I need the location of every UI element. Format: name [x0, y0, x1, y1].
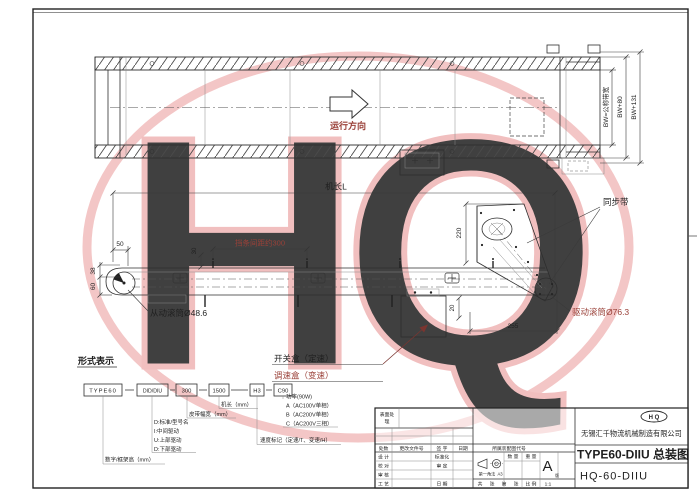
rev-small: 版: [555, 472, 559, 478]
std-label: 标准化: [435, 454, 450, 461]
process-label: 工 艺: [378, 482, 389, 488]
direction-label: 运行方向: [330, 120, 366, 131]
belongs-label: 所属装配图代号: [492, 445, 526, 452]
designation-heading: 形式表示: [78, 355, 114, 366]
drive-type-0: D:标准/型号名: [154, 418, 189, 426]
dim-255: 255: [508, 323, 519, 330]
check-label: 校 对: [378, 463, 389, 470]
projection-label: 第一角法: [479, 471, 496, 478]
sheet-unit: 张: [490, 481, 495, 488]
power-1: A（AC100V单相）: [286, 402, 332, 410]
total-label: 共: [478, 481, 483, 488]
logo-text: H Q: [649, 415, 660, 421]
drive-roller-label: 驱动滚筒Ø76.3: [572, 307, 629, 317]
sheet-size-label: A3: [497, 472, 503, 477]
power-3: C（AC200V三相）: [286, 420, 332, 428]
drive-type-1: I:中间驱动: [154, 427, 180, 435]
qty-label: 数 量: [508, 453, 519, 460]
length-label: 机长（mm）: [221, 401, 252, 409]
page-label: 第: [502, 481, 507, 488]
box-type: TYPE60: [89, 389, 117, 395]
speed-mark-label: 速度标记（定速/T、变速/H）: [260, 436, 331, 444]
box-length: 1500: [213, 389, 226, 395]
changes-label: 处数: [379, 445, 389, 452]
drawing-sheet: HQ: [0, 0, 700, 495]
box-speed: H3: [253, 389, 260, 395]
scale-value: 1:1: [545, 482, 552, 488]
dim-20: 20: [450, 304, 456, 311]
dim-bw80: BW+80: [617, 96, 624, 118]
company-name: 无锡汇千物流机械制造有限公司: [581, 429, 682, 438]
switch-box-label: 开关盒（定速）: [274, 354, 334, 364]
title-block: 表面处 理 处数 更改文件号 签 字 日期 设 计 校 对 审 核 工 艺 标准…: [375, 408, 689, 488]
dim-60: 60: [90, 283, 97, 291]
design-label: 设 计: [378, 454, 389, 461]
sheet-unit2: 张: [514, 481, 519, 488]
power-0: 功率(90W): [286, 393, 312, 401]
dim-bw: BW=公称带宽: [601, 86, 610, 127]
driven-roller-label: 从动滚筒Ø48.6: [150, 308, 207, 318]
box-drive: DID/DIU: [143, 389, 163, 395]
rev-letter: A: [542, 458, 552, 475]
speed-box-label: 调速盒（变速）: [274, 371, 334, 381]
drive-type-2: U:上部驱动: [154, 436, 182, 444]
scale-label: 比 例: [526, 481, 537, 488]
approve-label: 审 定: [437, 463, 448, 470]
change-file-label: 更改文件号: [400, 445, 424, 452]
sign-label: 签 字: [437, 445, 448, 452]
dim-38: 38: [90, 267, 97, 275]
weight-label: 重 量: [526, 453, 537, 460]
drawing-title: TYPE60-DIIU 总装图: [577, 447, 689, 462]
date2-label: 日 期: [437, 482, 448, 488]
date-label: 日期: [458, 446, 468, 452]
drive-type-3: D:下部驱动: [154, 445, 182, 453]
drawing-number: HQ-60-DIIU: [580, 471, 648, 483]
sync-belt-label: 同步带: [603, 197, 629, 207]
surface-label: 表面处: [380, 411, 395, 418]
box-width: 300: [182, 389, 192, 395]
plan-width-dims: BW=公称带宽 BW+80 BW+131: [600, 50, 644, 166]
dim-baffle-spacing: 挡条间距约300: [235, 238, 285, 248]
dim-bw131: BW+131: [631, 94, 638, 119]
frame-height-label: 数字/框架高（mm）: [105, 456, 154, 464]
dim-50: 50: [116, 241, 124, 248]
power-2: B（AC200V单相）: [286, 411, 332, 419]
belt-width-label: 皮带幅宽（mm）: [189, 410, 231, 418]
surface-label2: 理: [385, 419, 390, 425]
dim-machine-length: 机长L: [325, 182, 347, 192]
audit-label: 审 核: [378, 472, 389, 479]
dim-30: 30: [192, 247, 198, 254]
dim-220: 220: [456, 227, 463, 238]
